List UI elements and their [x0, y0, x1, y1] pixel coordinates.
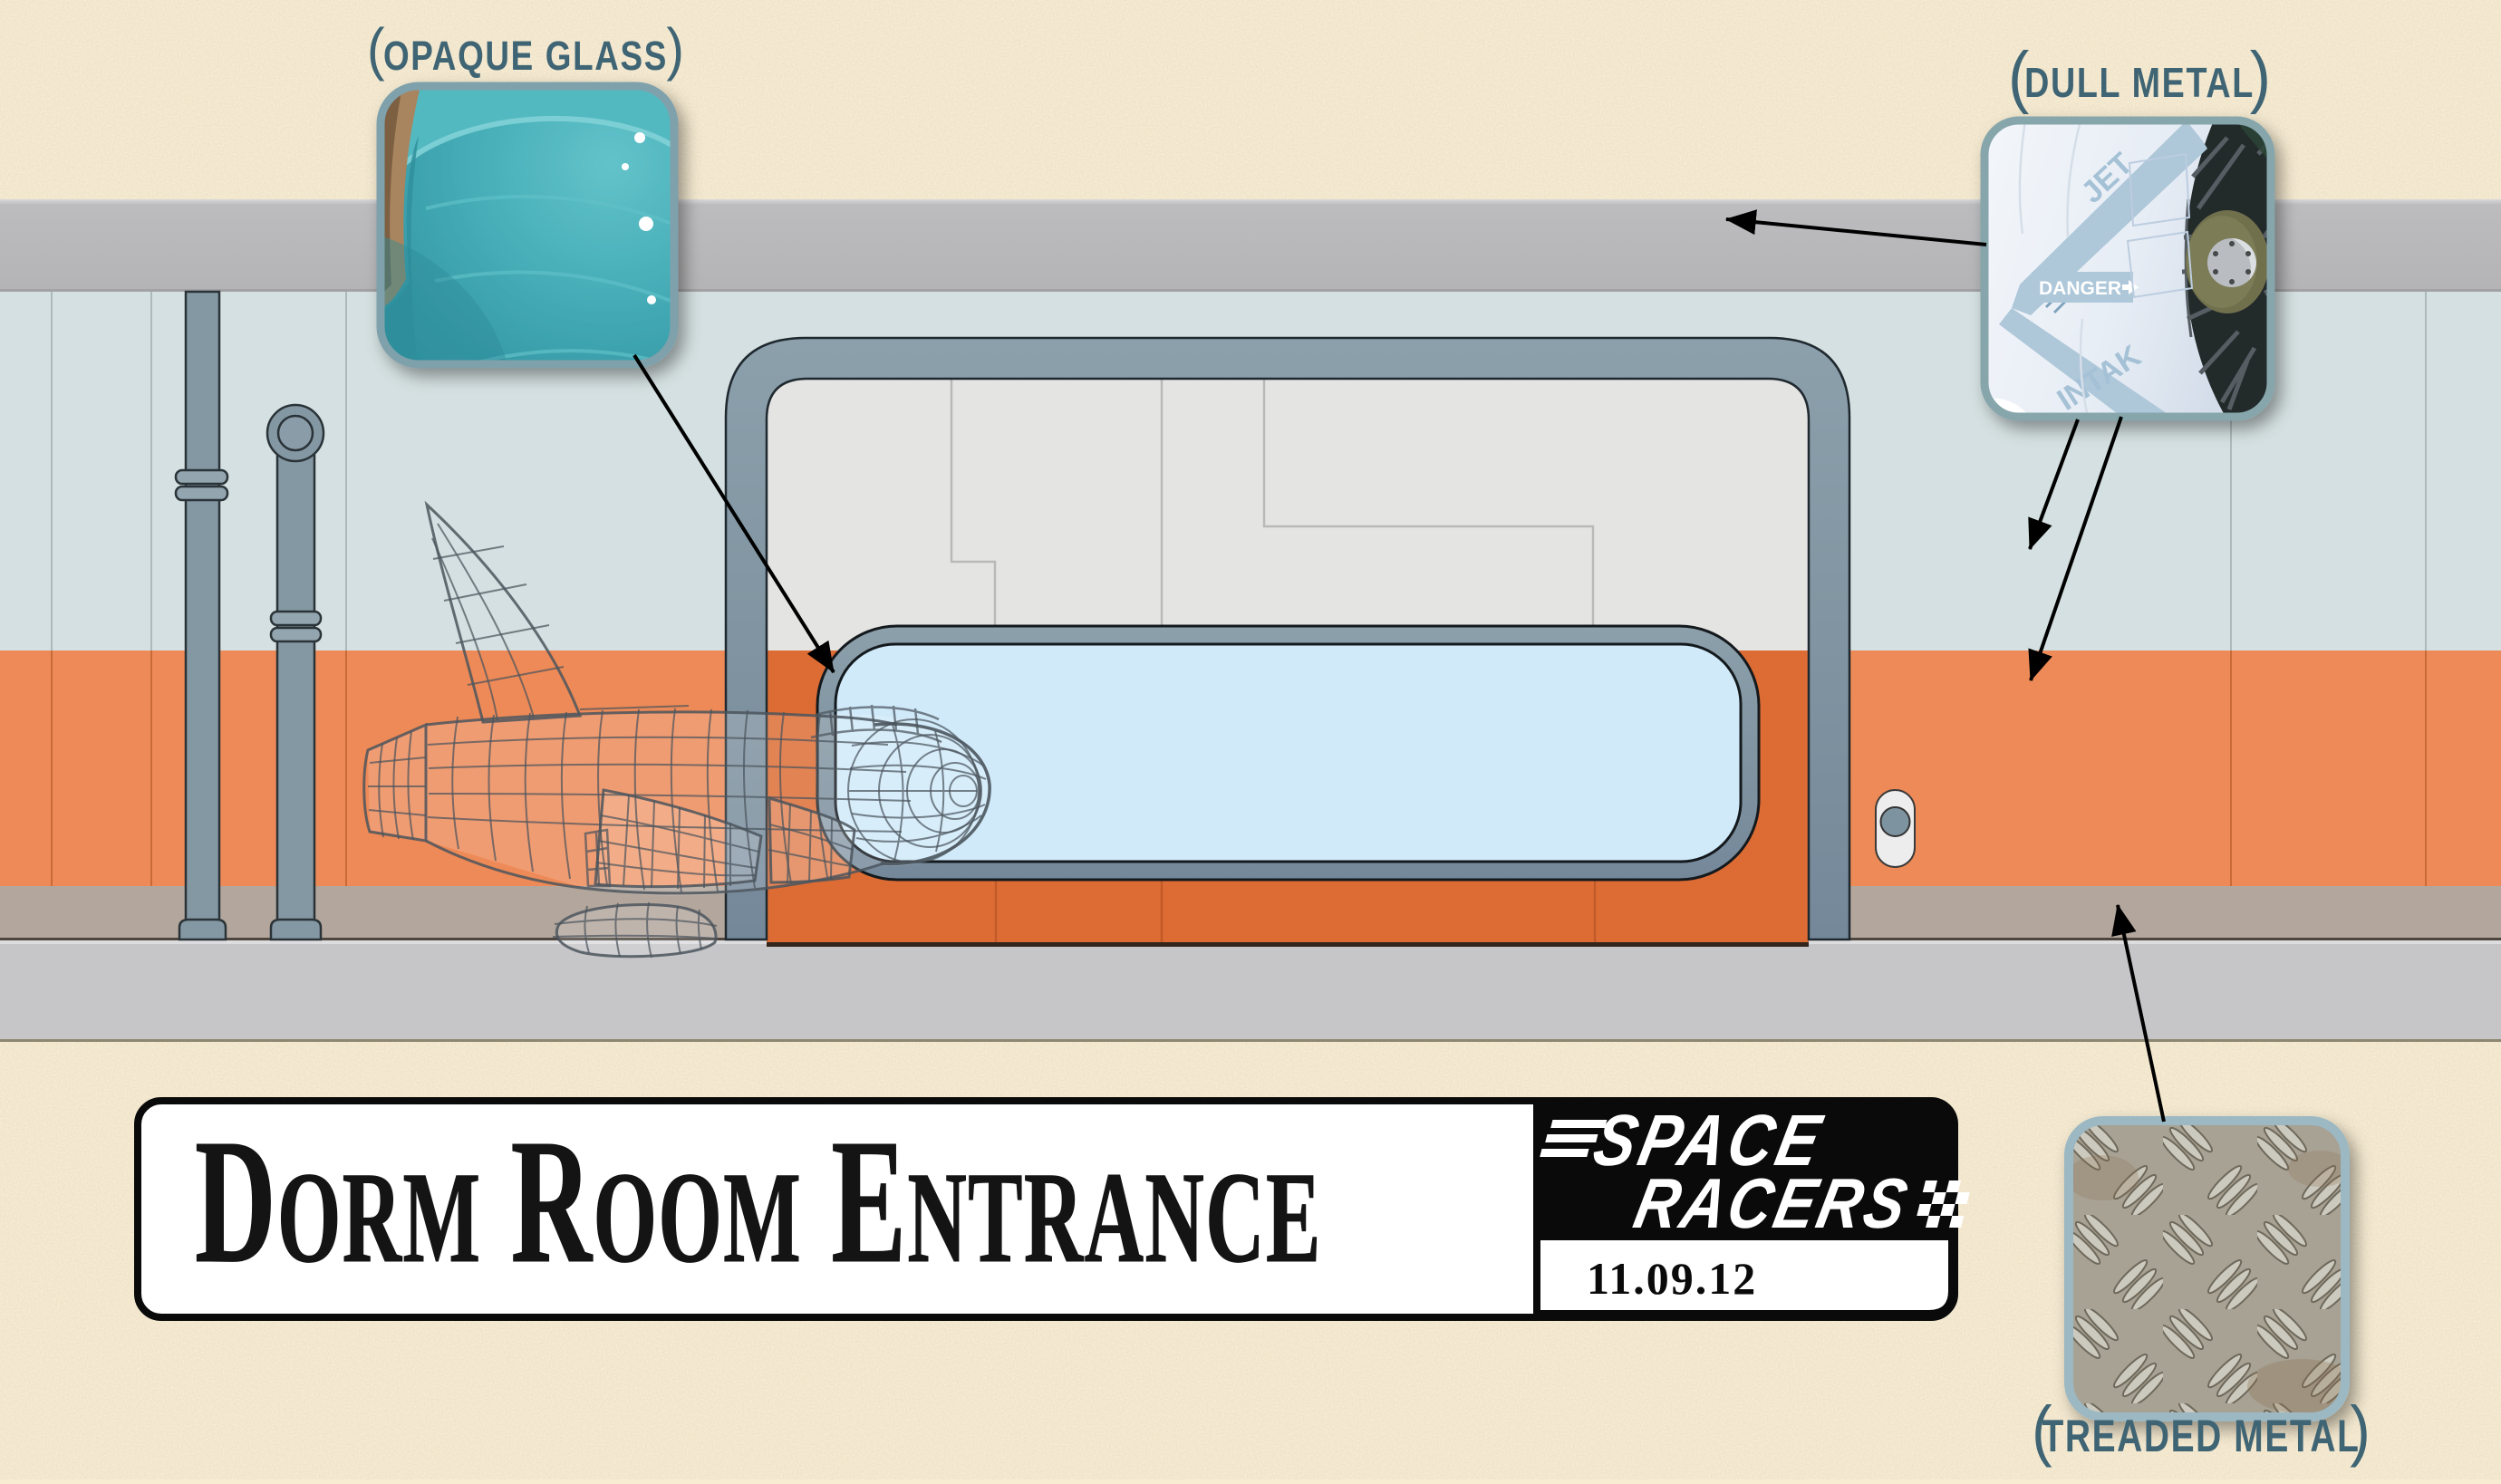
svg-text:DULL METAL: DULL METAL — [2024, 59, 2255, 105]
svg-text:DANGER: DANGER — [2039, 278, 2121, 299]
svg-text:OPAQUE GLASS: OPAQUE GLASS — [383, 34, 668, 79]
svg-text:(: ( — [367, 17, 385, 82]
svg-text:RACERS: RACERS — [1627, 1164, 1917, 1243]
svg-text:TREADED METAL: TREADED METAL — [2042, 1410, 2361, 1461]
svg-text:11.09.12: 11.09.12 — [1587, 1253, 1757, 1304]
svg-text:): ) — [666, 17, 684, 82]
